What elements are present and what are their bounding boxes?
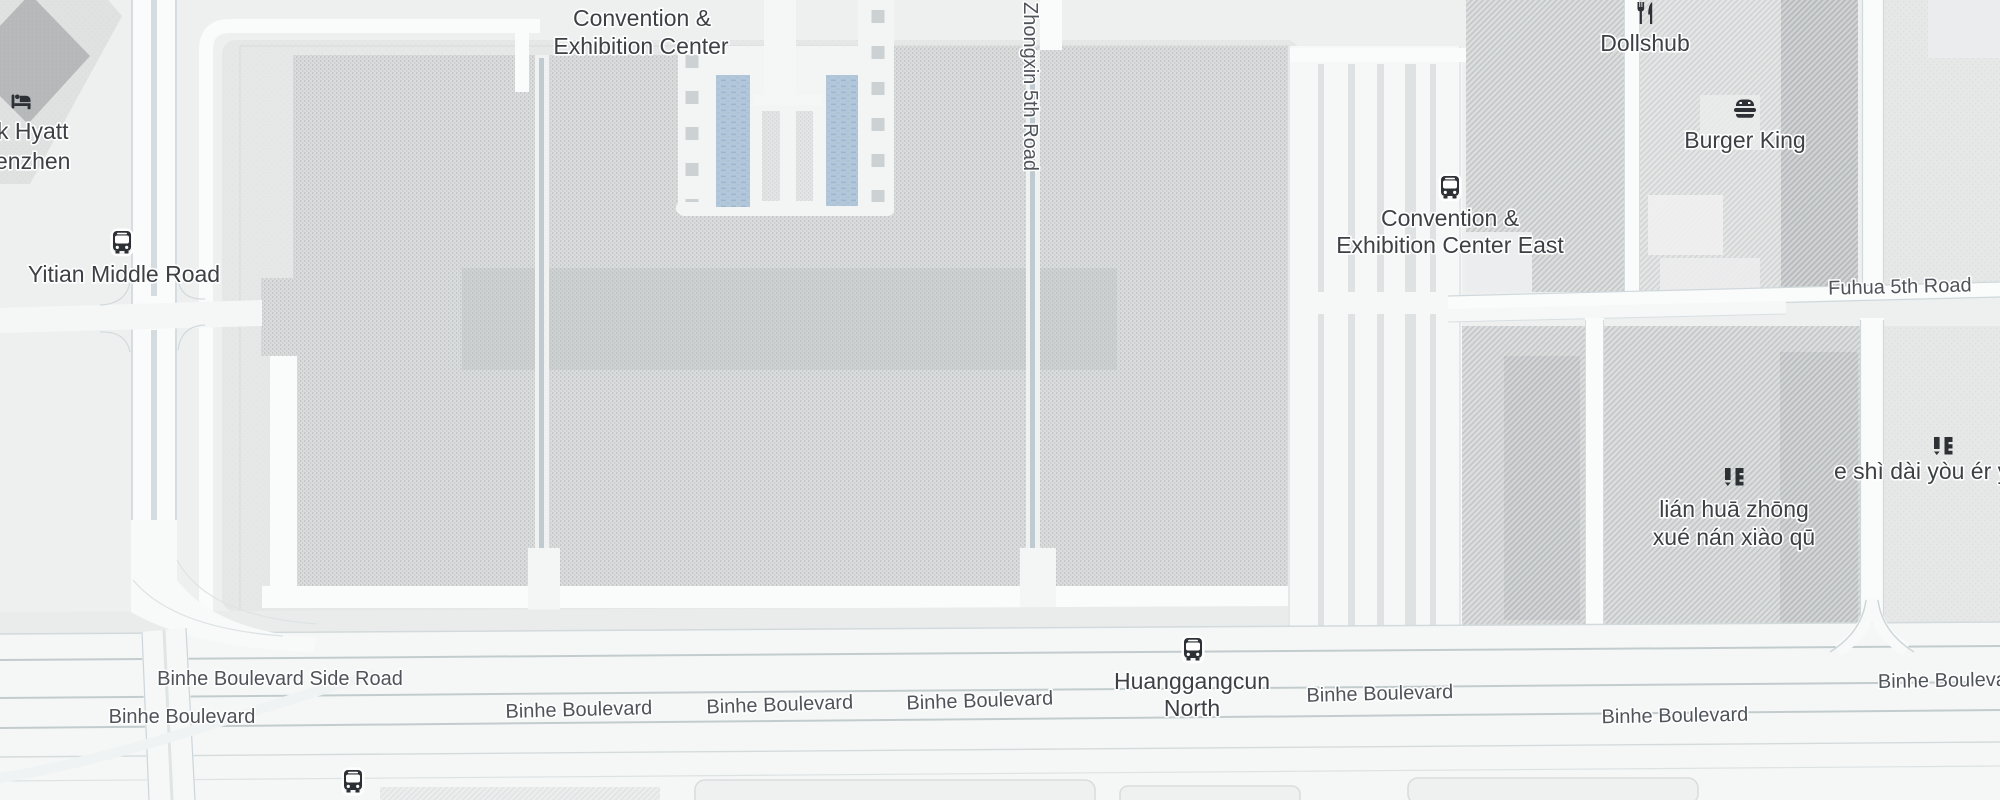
svg-text:Zhongxin 5th Road: Zhongxin 5th Road — [1019, 2, 1041, 171]
svg-text:Huanggangcun: Huanggangcun — [1114, 668, 1270, 694]
svg-text:Binhe Boulevard: Binhe Boulevard — [505, 697, 652, 723]
svg-text:xué nán xiào qū: xué nán xiào qū — [1653, 524, 1815, 550]
svg-text:Exhibition Center East: Exhibition Center East — [1336, 232, 1564, 258]
svg-text:Dollshub: Dollshub — [1600, 30, 1690, 56]
svg-text:Convention &: Convention & — [573, 5, 711, 31]
svg-text:e shì dài yòu ér y: e shì dài yòu ér y — [1834, 458, 2000, 484]
svg-text:Convention &: Convention & — [1381, 205, 1519, 231]
svg-text:Burger King: Burger King — [1684, 127, 1805, 153]
svg-text:Yitian Middle Road: Yitian Middle Road — [28, 261, 220, 287]
svg-text:North: North — [1164, 695, 1220, 721]
svg-text:Binhe Boulevard: Binhe Boulevard — [1306, 681, 1453, 707]
svg-text:Exhibition Center: Exhibition Center — [553, 33, 728, 59]
svg-text:k Hyatt: k Hyatt — [0, 118, 69, 144]
svg-text:lián huā zhōng: lián huā zhōng — [1659, 496, 1809, 522]
svg-text:Binhe Boulevard: Binhe Boulevard — [109, 706, 256, 728]
svg-text:Binhe Boulevard: Binhe Boulevard — [1601, 704, 1748, 729]
svg-text:enzhen: enzhen — [0, 148, 70, 174]
svg-text:Binhe Boulevard: Binhe Boulevard — [1878, 668, 2000, 693]
svg-text:Binhe Boulevard Side Road: Binhe Boulevard Side Road — [157, 668, 403, 690]
svg-text:Fuhua 5th Road: Fuhua 5th Road — [1828, 274, 1972, 299]
